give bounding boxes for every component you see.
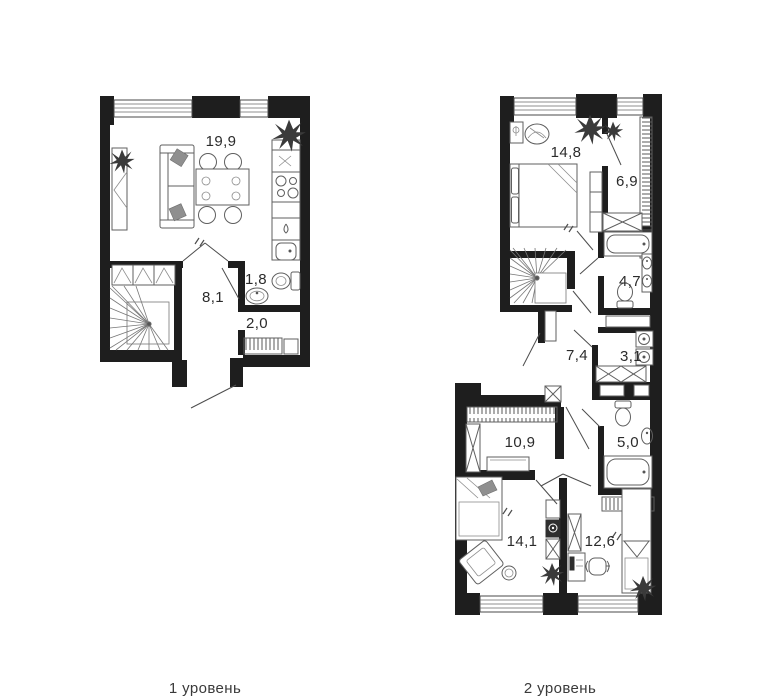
desk [568, 553, 585, 581]
double-bed [510, 164, 577, 227]
room-area-bedroom: 14,8 [551, 144, 582, 161]
desk-chair [586, 558, 610, 575]
duct [606, 316, 650, 327]
window [480, 596, 543, 612]
dining-table [196, 154, 249, 224]
bathtub [604, 232, 652, 256]
cabinet [466, 424, 480, 472]
kitchen-units [272, 140, 300, 260]
window [617, 98, 643, 115]
room-area-bathroom-2: 5,0 [617, 434, 639, 451]
shaft-box [545, 386, 561, 402]
room-area-bedroom-2: 14,1 [507, 533, 538, 550]
level-2-caption: 2 уровень [524, 680, 596, 697]
side-table [502, 566, 516, 580]
window [578, 596, 638, 612]
room-area-hallway: 8,1 [202, 289, 224, 306]
bench [487, 457, 529, 471]
room-area-living: 19,9 [206, 133, 237, 150]
plant-icon [574, 115, 605, 145]
door-tick [503, 508, 512, 516]
floor-plan-page: 19,9 1,8 8,1 2,0 [0, 0, 771, 700]
armchair [525, 124, 549, 144]
duct [600, 385, 624, 396]
window [114, 100, 192, 117]
countertop [596, 366, 646, 382]
bed [456, 477, 502, 540]
room-area-bedroom-3: 12,6 [585, 533, 616, 550]
room-area-wc: 1,8 [245, 271, 267, 288]
room-area-bathroom: 4,7 [619, 273, 641, 290]
utility-column [546, 500, 560, 559]
wc-sink [246, 288, 268, 304]
room-area-wardrobe-room: 6,9 [616, 173, 638, 190]
duct [545, 311, 556, 341]
level-1-caption: 1 уровень [169, 680, 241, 697]
double-sink [642, 254, 652, 292]
floor-plan-drawing: 19,9 1,8 8,1 2,0 [0, 0, 771, 700]
wardrobe [112, 265, 175, 285]
storage-box [603, 213, 642, 231]
window [514, 98, 576, 115]
window [240, 100, 268, 117]
room-area-dressing: 10,9 [505, 434, 536, 451]
toilet [272, 272, 300, 290]
room-area-corridor: 7,4 [566, 347, 588, 364]
hatched-cabinet [244, 338, 298, 354]
room-area-laundry: 3,1 [620, 348, 642, 365]
room-area-closet: 2,0 [246, 315, 268, 332]
wardrobe [467, 407, 557, 422]
duct [634, 385, 649, 396]
sofa [160, 145, 194, 228]
single-bed [622, 489, 651, 593]
nightstand [510, 122, 523, 143]
level-1-plan: 19,9 1,8 8,1 2,0 [100, 96, 310, 408]
wardrobe [568, 514, 581, 551]
toilet [615, 401, 631, 426]
wardrobe [590, 172, 602, 232]
bathtub [604, 456, 652, 488]
level-2-plan: 14,8 6,9 4,7 7,4 3,1 10,9 5,0 14,1 12,6 [455, 94, 662, 615]
staircase [110, 286, 169, 350]
